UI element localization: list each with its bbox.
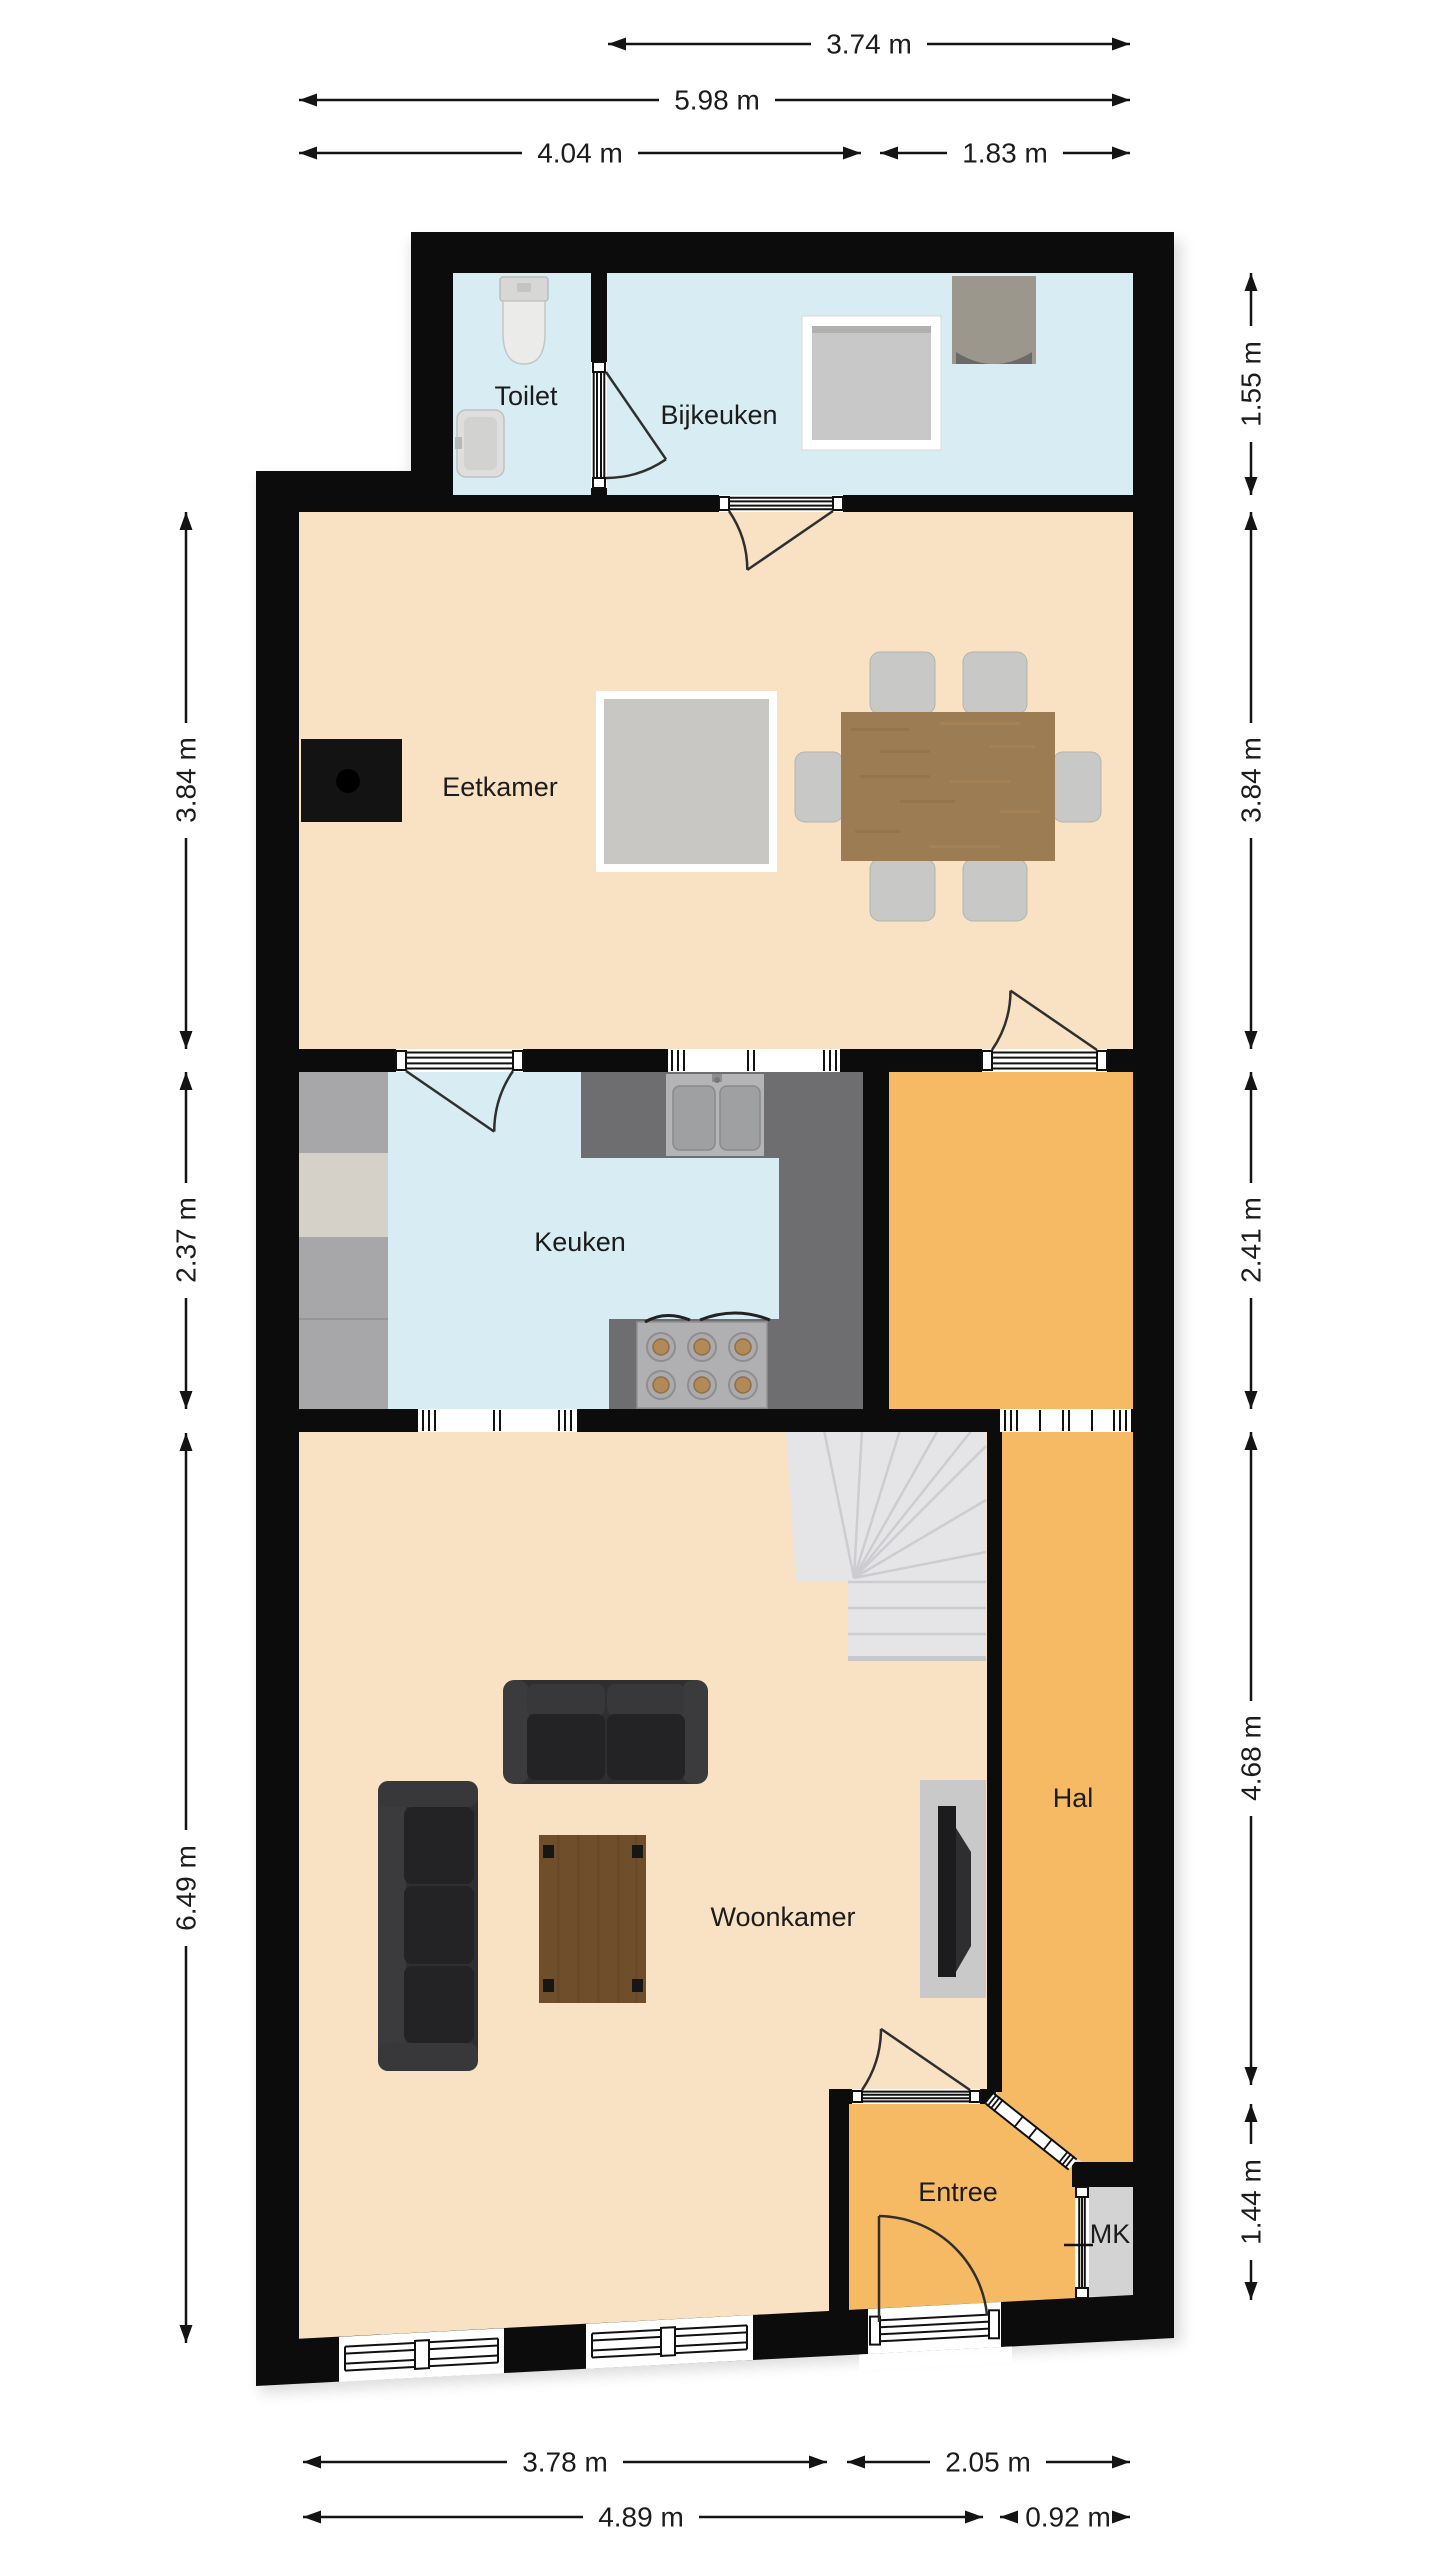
svg-text:Eetkamer: Eetkamer bbox=[442, 772, 558, 802]
svg-text:Toilet: Toilet bbox=[494, 381, 558, 411]
svg-text:4.89 m: 4.89 m bbox=[598, 2502, 684, 2533]
svg-text:1.55 m: 1.55 m bbox=[1236, 341, 1267, 427]
svg-text:1.83 m: 1.83 m bbox=[962, 138, 1048, 169]
svg-text:Woonkamer: Woonkamer bbox=[710, 1902, 855, 1932]
svg-text:0.92 m: 0.92 m bbox=[1025, 2502, 1111, 2533]
svg-text:6.49 m: 6.49 m bbox=[171, 1845, 202, 1931]
svg-text:2.37 m: 2.37 m bbox=[171, 1197, 202, 1283]
svg-text:5.98 m: 5.98 m bbox=[674, 85, 760, 116]
svg-text:4.68 m: 4.68 m bbox=[1236, 1715, 1267, 1801]
svg-text:Hal: Hal bbox=[1053, 1783, 1094, 1813]
svg-text:3.74 m: 3.74 m bbox=[826, 29, 912, 60]
svg-text:3.78 m: 3.78 m bbox=[522, 2447, 608, 2478]
svg-text:4.04 m: 4.04 m bbox=[537, 138, 623, 169]
svg-text:Keuken: Keuken bbox=[534, 1227, 626, 1257]
svg-text:Bijkeuken: Bijkeuken bbox=[660, 400, 777, 430]
svg-text:1.44 m: 1.44 m bbox=[1236, 2159, 1267, 2245]
svg-text:3.84 m: 3.84 m bbox=[171, 737, 202, 823]
svg-text:MK: MK bbox=[1090, 2219, 1131, 2249]
svg-text:Entree: Entree bbox=[918, 2177, 998, 2207]
svg-text:2.05 m: 2.05 m bbox=[945, 2447, 1031, 2478]
svg-text:2.41 m: 2.41 m bbox=[1236, 1197, 1267, 1283]
svg-text:3.84 m: 3.84 m bbox=[1236, 737, 1267, 823]
